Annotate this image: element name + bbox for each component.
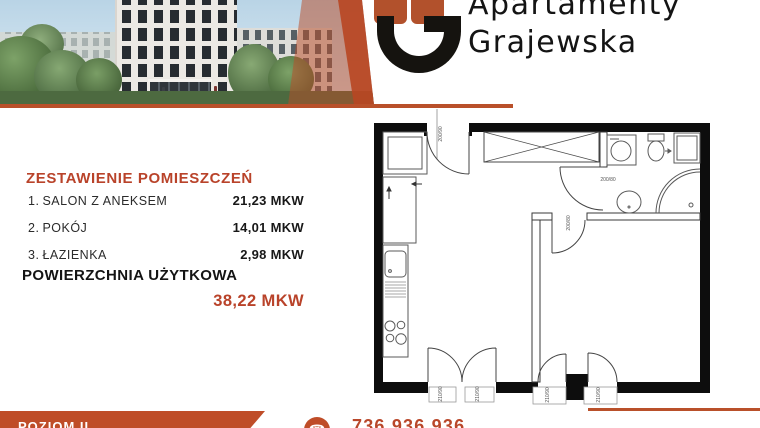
- outer-walls: [374, 123, 710, 400]
- bathroom-door-arc: [560, 167, 603, 210]
- entrance-door-arc: [427, 132, 469, 174]
- dim-label-entrance: 200/90: [438, 126, 444, 142]
- brand-line2: Grajewska: [468, 24, 681, 62]
- fridge-inner: [388, 137, 422, 169]
- phone-number: 736 936 936: [352, 416, 465, 428]
- room-name: SALON Z ANEKSEM: [42, 194, 167, 208]
- room-list: 1.SALON Z ANEKSEM 21,23 MKW 2.POKÓJ 14,0…: [28, 193, 304, 274]
- wardrobe-icon: [484, 132, 599, 162]
- room-index: 3.: [28, 248, 39, 262]
- stove-burner: [397, 321, 405, 329]
- plan-arrows: [387, 182, 422, 199]
- balcony-door-left-arc: [428, 348, 462, 382]
- accent-line-bottom: [588, 408, 760, 411]
- entry-arrow-icon: [412, 182, 422, 186]
- wall-top-right: [469, 123, 710, 132]
- dim-label-room-door: 200/80: [566, 215, 572, 231]
- doors: [427, 132, 617, 382]
- sink-drain: [389, 270, 392, 273]
- room-row: 3.ŁAZIENKA 2,98 MKW: [28, 247, 304, 262]
- room-window-right-arc: [588, 353, 617, 382]
- interior-walls: [532, 132, 700, 382]
- room-window-left-arc: [538, 354, 566, 382]
- shower-drain: [689, 203, 693, 207]
- cabinet-arrow-icon: [387, 187, 391, 199]
- total-area-label: POWIERZCHNIA UŻYTKOWA: [22, 267, 237, 284]
- room-row: 1.SALON Z ANEKSEM 21,23 MKW: [28, 193, 304, 208]
- wall-right: [700, 123, 710, 393]
- room-row: 2.POKÓJ 14,01 MKW: [28, 220, 304, 235]
- phone-icon: ☎: [304, 417, 330, 428]
- room-area: 21,23 MKW: [233, 193, 304, 208]
- stove-burner: [396, 334, 406, 344]
- washing-machine-drum: [611, 141, 631, 161]
- stove-burner: [386, 334, 394, 342]
- kitchen-cabinet-icon: [383, 177, 416, 243]
- wall-bottom-2: [496, 382, 538, 393]
- level-label: POZIOM II: [18, 419, 89, 428]
- logo-g-bar: [424, 16, 461, 32]
- room-name: ŁAZIENKA: [42, 248, 106, 262]
- brochure-page: Apartamenty Grajewska ZESTAWIENIE POMIES…: [0, 0, 760, 428]
- room-area: 14,01 MKW: [233, 220, 304, 235]
- wall-bottom-1: [374, 382, 428, 393]
- toilet-icon: [648, 141, 664, 161]
- wall-left: [374, 123, 383, 393]
- accent-line-top: [0, 104, 513, 108]
- dim-label-sill: 210/90: [475, 386, 481, 402]
- dim-label-bathroom-door: 200/80: [600, 177, 616, 183]
- wall-bottom-3: [617, 382, 710, 393]
- dim-label-sill: 210/90: [545, 387, 551, 403]
- stove-burner: [385, 321, 395, 331]
- room-index: 2.: [28, 221, 39, 235]
- floor-plan: 200/90 200/80 200/80 210/90 210/90 210/9…: [374, 123, 710, 399]
- drainer-icon: [385, 282, 406, 297]
- wall-bathroom-left: [600, 132, 607, 167]
- shower-icon: [656, 169, 700, 213]
- bathroom: [607, 133, 700, 213]
- toilet-arrow: [665, 149, 671, 153]
- wall-bathroom-bottom: [587, 213, 700, 220]
- summary-title: ZESTAWIENIE POMIESZCZEŃ: [26, 170, 253, 187]
- wall-room-top-left: [532, 213, 552, 220]
- balcony-door-right-arc: [462, 348, 496, 382]
- dim-label-sill: 210/90: [438, 386, 444, 402]
- washbasin-icon: [617, 191, 641, 213]
- room-area: 2,98 MKW: [240, 247, 304, 262]
- toilet-tank: [648, 134, 664, 141]
- fridge-icon: [383, 132, 427, 174]
- room-name: POKÓJ: [42, 221, 87, 235]
- room-index: 1.: [28, 194, 39, 208]
- shaft-cabinet: [674, 133, 700, 163]
- dim-label-sill: 210/90: [596, 387, 602, 403]
- total-area-value: 38,22 MKW: [28, 292, 304, 311]
- kitchen: [383, 132, 427, 357]
- brand-line1: Apartamenty: [468, 0, 681, 24]
- brand-name: Apartamenty Grajewska: [468, 0, 681, 62]
- kitchen-sink-icon: [385, 251, 406, 277]
- wall-room-vertical: [532, 213, 540, 382]
